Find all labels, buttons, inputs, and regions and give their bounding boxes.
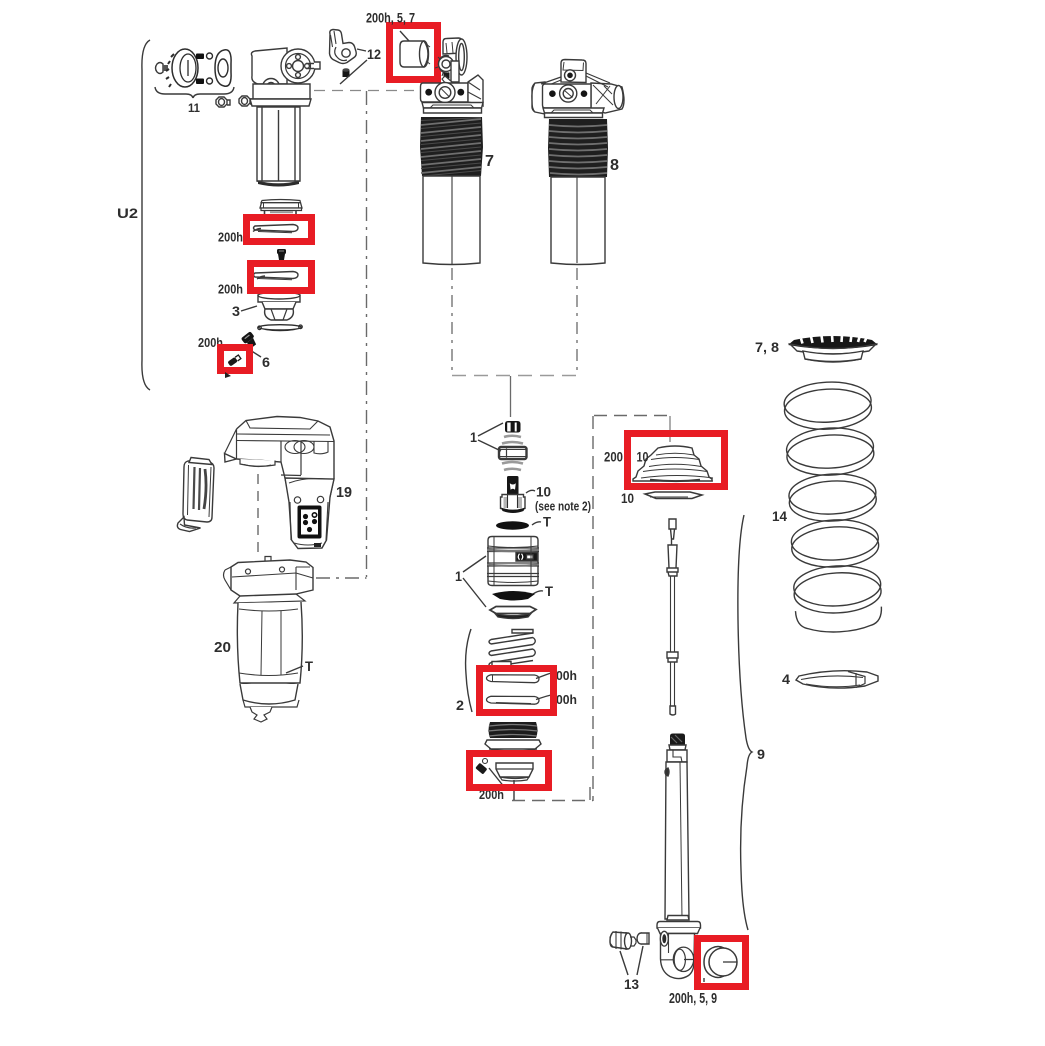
svg-text:10: 10 (621, 491, 634, 506)
svg-text:4: 4 (782, 671, 790, 687)
svg-text:13: 13 (624, 976, 639, 992)
svg-text:20: 20 (214, 640, 231, 656)
svg-text:3: 3 (232, 303, 240, 319)
svg-text:T: T (305, 658, 313, 674)
svg-text:200h: 200h (218, 282, 243, 297)
svg-text:8: 8 (610, 157, 619, 174)
svg-text:200h, 5, 9: 200h, 5, 9 (669, 991, 717, 1007)
svg-text:12: 12 (367, 46, 381, 62)
svg-text:00h: 00h (556, 692, 577, 707)
svg-text:7: 7 (485, 153, 494, 170)
svg-text:14: 14 (772, 508, 787, 524)
svg-text:1: 1 (470, 429, 477, 445)
svg-text:1: 1 (455, 568, 462, 584)
svg-text:200h, 5, 7: 200h, 5, 7 (366, 11, 415, 26)
svg-text:19: 19 (336, 485, 352, 501)
svg-text:T: T (545, 583, 553, 599)
svg-text:2: 2 (456, 697, 464, 713)
svg-text:200: 200 (604, 450, 623, 465)
svg-text:200h: 200h (218, 230, 243, 245)
svg-text:10: 10 (536, 484, 551, 500)
svg-text:11: 11 (188, 103, 201, 115)
svg-text:U2: U2 (117, 205, 138, 221)
svg-text:9: 9 (757, 746, 765, 762)
svg-text:6: 6 (262, 354, 270, 370)
svg-text:7, 8: 7, 8 (755, 339, 779, 355)
svg-text:T: T (543, 514, 551, 530)
svg-text:10: 10 (637, 450, 649, 465)
svg-text:(see note 2): (see note 2) (535, 500, 591, 514)
svg-text:00h: 00h (556, 668, 577, 683)
